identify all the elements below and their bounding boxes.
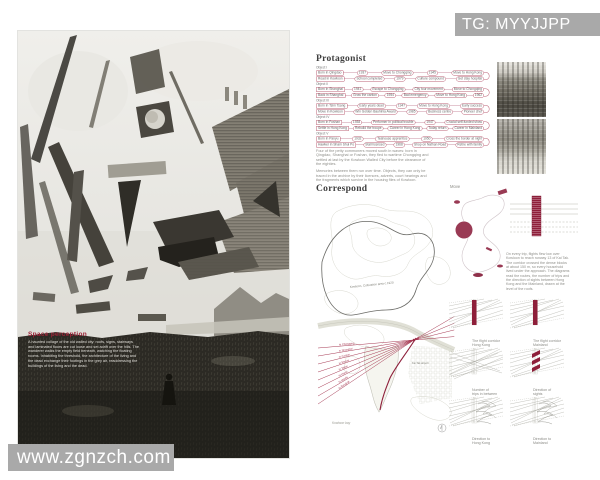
- analysis-diagram: The flight corridorMainland: [509, 298, 567, 347]
- flow-node: Early years dead: [357, 103, 385, 108]
- poster-heading: Space perception: [28, 331, 140, 338]
- analysis-diagram: Direction toMainland: [509, 396, 567, 445]
- corridor-lines: [510, 204, 578, 232]
- flow-node: Escape to Chongqing: [370, 87, 405, 92]
- analysis-diagram: Direction toHong Kong: [448, 396, 506, 445]
- svg-text:to Shanghai: to Shanghai: [339, 346, 354, 352]
- flow-group: Object IIBorn in Shanghai1941Escape to C…: [316, 83, 490, 99]
- flow-node: School completed: [354, 76, 384, 81]
- flow-node: Teahouse apprentice: [375, 136, 409, 141]
- flow-node: Cross the border at night: [444, 136, 484, 141]
- flow-node: Culture compound: [415, 76, 446, 81]
- flow-node: Get stay hospital: [456, 76, 484, 81]
- diagram-caption: Direction toMainland: [533, 437, 567, 446]
- flow-node: City tour movement: [413, 87, 445, 92]
- flow-node: Back in Shanghai: [316, 93, 345, 98]
- correspond-heading: Correspond: [316, 184, 367, 194]
- analysis-diagram: Direction ofsights: [509, 347, 567, 396]
- flow-node: Move in Kowloon: [316, 109, 345, 114]
- flow-node: Career in Hong Kong: [388, 126, 423, 131]
- analysis-diagram: The flight corridorHong Kong: [448, 298, 506, 347]
- flow-node: 1962: [473, 93, 484, 98]
- flow-node: 1985: [406, 109, 417, 114]
- analysis-diagram: Number oftrips in between: [448, 347, 506, 396]
- watermark-telegram: TG: MYYJJPP: [455, 13, 600, 36]
- flow-node: Move to Hong Kong: [451, 70, 484, 75]
- flow-object-label: Object II: [316, 83, 484, 87]
- flow-node: Career in Mainland: [453, 126, 484, 131]
- map-area-label: Kowloon, Cultivation area c.1920: [350, 280, 394, 289]
- flow-node: 1945: [427, 70, 438, 75]
- flow-node: 1950: [421, 136, 432, 141]
- flow-node: Today return: [426, 126, 448, 131]
- flow-node: 1947: [424, 120, 435, 125]
- flow-object-label: Object V: [316, 132, 484, 136]
- corridor-bar: [532, 196, 541, 236]
- flow-node: Early success: [460, 103, 484, 108]
- flow-node: 1932: [352, 136, 363, 141]
- flow-node: Move to Hong Kong: [434, 93, 467, 98]
- poster-collage: Space perception A haunted collage of th…: [18, 31, 289, 458]
- map-bay-label: Kowloon bay: [332, 421, 351, 425]
- flow-node: Born in Shanghai: [316, 87, 345, 92]
- board-right-panel: Protagonist Object IBorn in Qingdao1937M…: [314, 54, 600, 454]
- flow-node: 1941: [352, 87, 363, 92]
- flow-node: 1979: [394, 76, 405, 81]
- diagram-caption: Direction toHong Kong: [472, 437, 506, 446]
- svg-text:to Chongqing: to Chongqing: [339, 341, 355, 346]
- kowloon-topographic-map: to Chongqingto Shanghaito Cantonto Macau…: [316, 198, 456, 442]
- flow-group: Object IVBorn in Foshan1938Performer in …: [316, 116, 490, 132]
- flow-node: 1968: [394, 142, 405, 147]
- flow-node: Performer in political trouble: [371, 120, 415, 125]
- compass-icon: [438, 424, 446, 432]
- flow-node: 1937: [357, 70, 368, 75]
- flow-object-label: Object IV: [316, 116, 484, 120]
- flow-node: Pioneer chef: [462, 109, 484, 114]
- svg-text:to Macau: to Macau: [338, 358, 350, 365]
- flow-group: Object IIIBorn in Tsim TsangEarly years …: [316, 99, 490, 115]
- flow-node: Hawker in Sham Shui Po: [316, 142, 356, 147]
- move-label: Move: [450, 184, 461, 189]
- flow-node: Business centre: [426, 109, 453, 114]
- flow-object-label: Object III: [316, 99, 484, 103]
- flow-node: Bad emergency: [402, 93, 429, 98]
- diagram-grid: The flight corridorHong KongThe flight c…: [448, 298, 570, 445]
- svg-text:to Canton: to Canton: [338, 352, 350, 359]
- map-airport-label: Kai Tak airport: [412, 361, 429, 365]
- flow-node: Move to Chongqing: [452, 87, 484, 92]
- flow-node: Born in Qingdao: [316, 70, 343, 75]
- urban-blocks: [408, 346, 452, 404]
- flow-node: Crucial self-funded show: [444, 120, 484, 125]
- poster-statement: Space perception A haunted collage of th…: [28, 331, 140, 368]
- archive-street-photo-2: [497, 119, 546, 174]
- flow-node: Rebuild the troupe: [353, 126, 384, 131]
- origin-node: [456, 222, 473, 239]
- flow-node: Grow the canton: [351, 93, 379, 98]
- flow-group: Object IBorn in Qingdao1937Move to Chong…: [316, 66, 490, 82]
- archive-street-photo-1: [497, 62, 546, 117]
- flow-node: Settle in Hong Kong: [316, 126, 349, 131]
- flow-node: Born in Panyu: [316, 136, 340, 141]
- protagonist-note-1: Four of the petty commoners moved south …: [316, 149, 431, 166]
- flow-node: Shop on Nathan Road: [412, 142, 448, 147]
- flow-node: 1947: [396, 103, 407, 108]
- watermark-website: www.zgnzch.com: [8, 444, 174, 471]
- protagonist-notes: Four of the petty commoners moved south …: [316, 149, 431, 186]
- flow-node: Born in Foshan: [316, 120, 342, 125]
- correspond-note: On every trip, flights flew low over Kow…: [506, 252, 570, 291]
- flow-node: Win Golden Bauhinia Award: [353, 109, 397, 114]
- protagonist-note-2: Memories between them run over time. Obj…: [316, 169, 431, 182]
- flow-node: 1938: [351, 120, 362, 125]
- collage-artwork: [18, 31, 289, 458]
- flowchart: Object IBorn in Qingdao1937Move to Chong…: [316, 66, 490, 149]
- flow-node: Road in Kowloon: [316, 76, 345, 81]
- flow-node: Move to Hong Kong: [417, 103, 450, 108]
- flow-object-label: Object I: [316, 66, 484, 70]
- district-boundary: [322, 221, 435, 315]
- flow-node: Move to Chongqing: [381, 70, 413, 75]
- flow-node: 1954: [385, 93, 396, 98]
- flow-node: Born in Tsim Tsang: [316, 103, 347, 108]
- flow-group: Object VBorn in Panyu1932Teahouse appren…: [316, 132, 490, 148]
- flow-node: Retire with family: [455, 142, 484, 147]
- flow-node: Stall licensed: [363, 142, 386, 147]
- protagonist-heading: Protagonist: [316, 54, 366, 64]
- poster-body-text: A haunted collage of the old walled city…: [28, 340, 140, 368]
